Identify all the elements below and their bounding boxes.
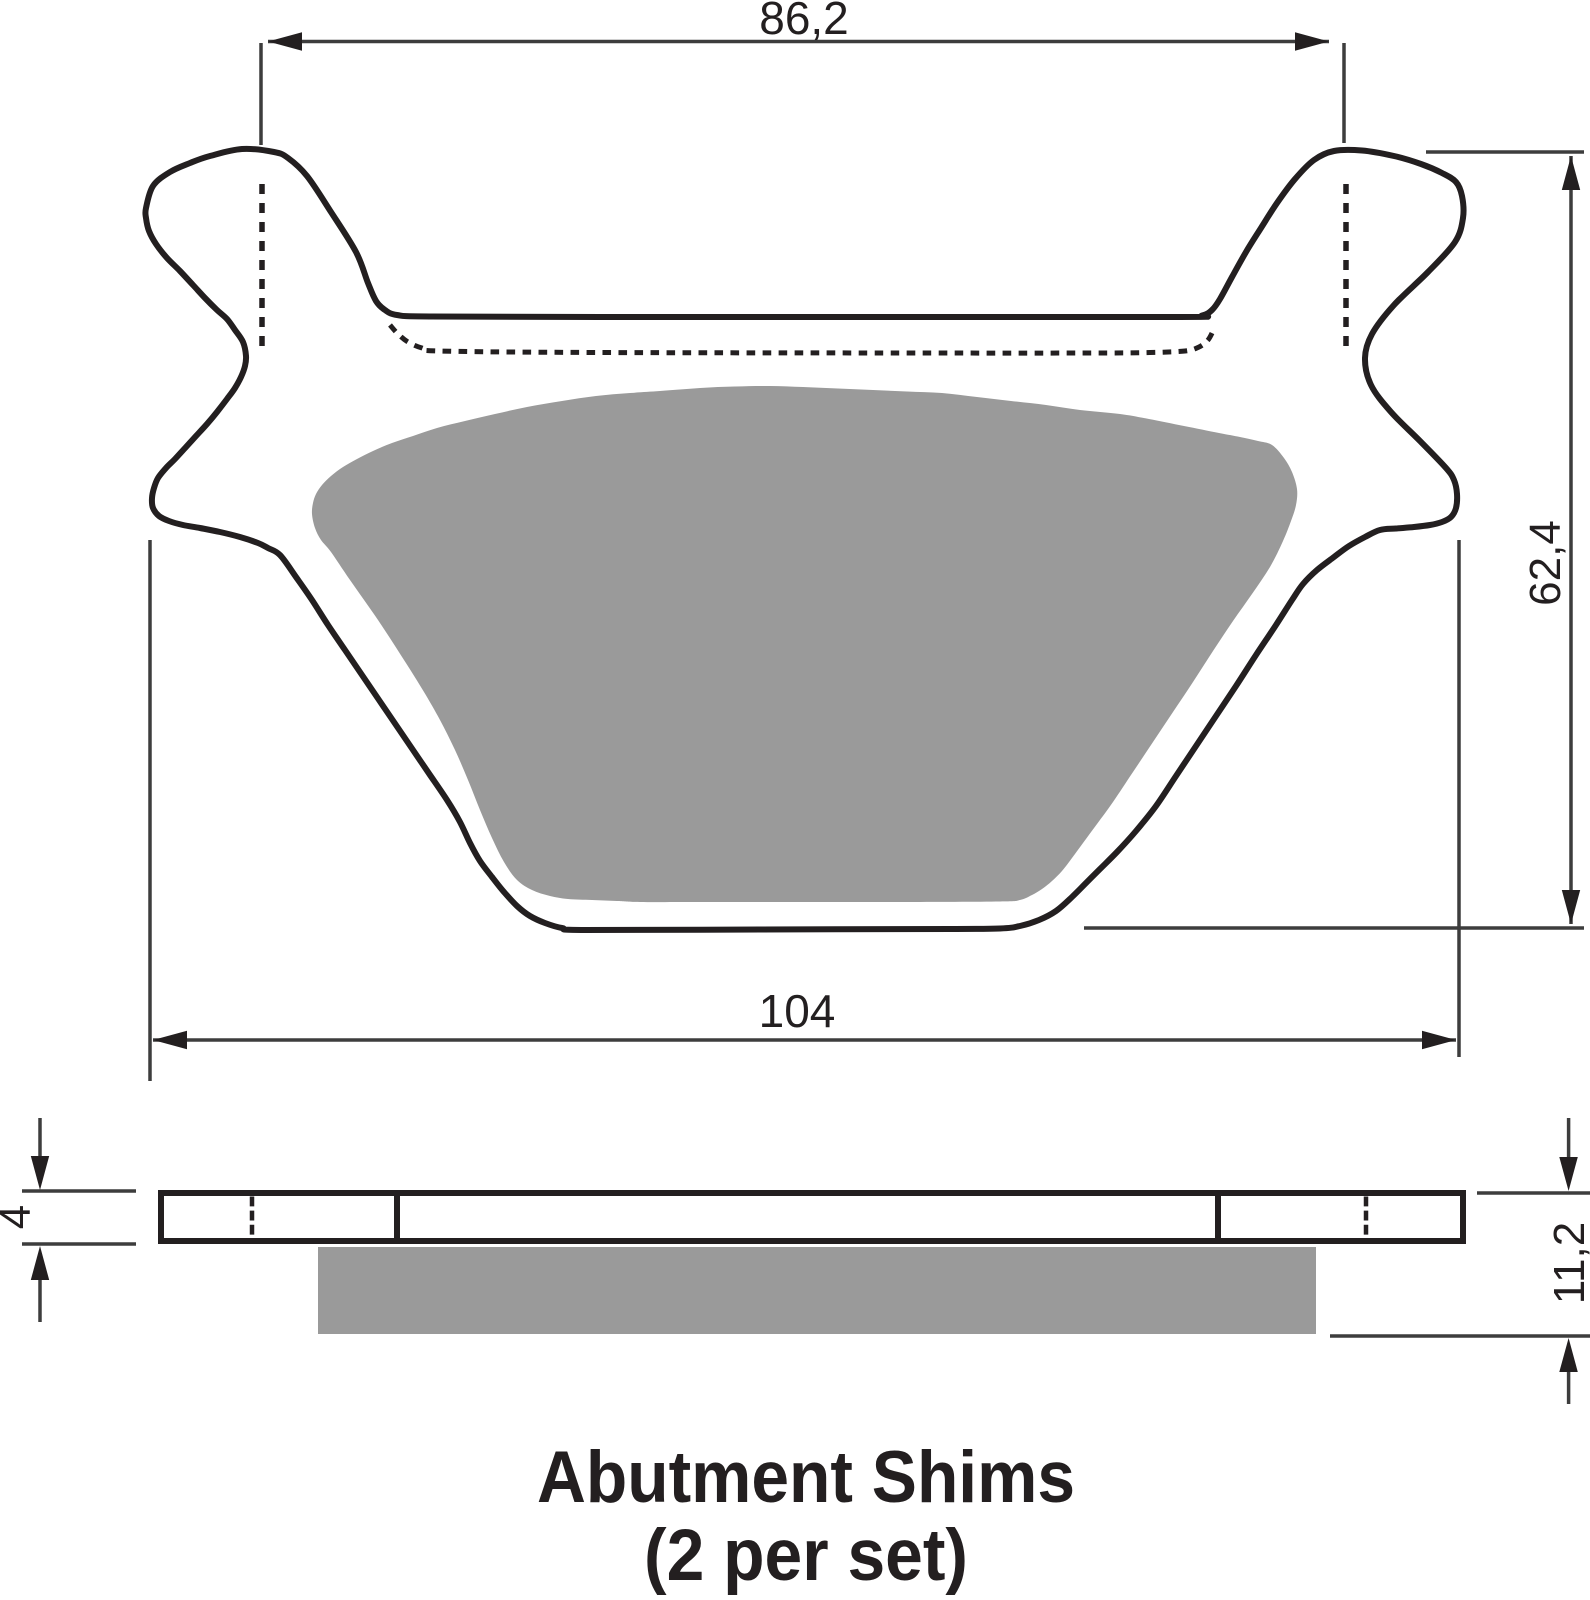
svg-text:(2 per set): (2 per set) — [644, 1515, 968, 1596]
svg-text:62,4: 62,4 — [1521, 520, 1570, 606]
svg-text:86,2: 86,2 — [759, 0, 849, 44]
svg-text:11,2: 11,2 — [1545, 1222, 1590, 1304]
svg-text:4: 4 — [0, 1205, 40, 1229]
svg-text:Abutment Shims: Abutment Shims — [537, 1437, 1075, 1518]
svg-text:104: 104 — [759, 985, 836, 1037]
